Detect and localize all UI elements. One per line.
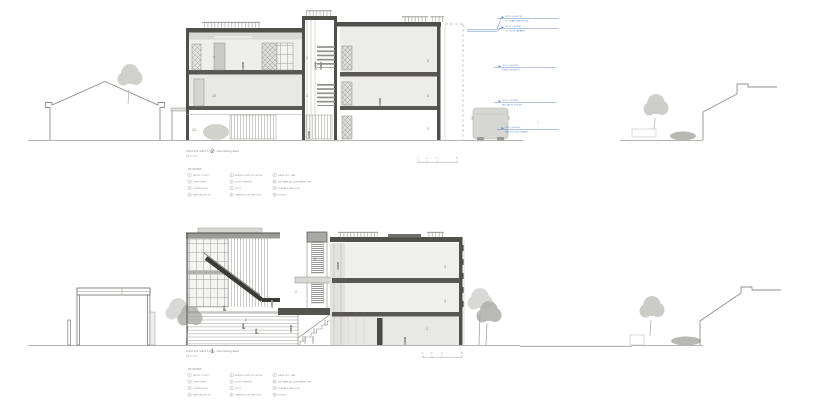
svg-text:+31'-6" (+9.60 M): +31'-6" (+9.60 M) [505, 26, 521, 28]
room-label: 1 [426, 327, 428, 331]
tree [468, 288, 502, 345]
tree [644, 94, 669, 130]
drawing-sheet: 0 2' 4' 8' KEYNOTES 1ENTRY COURT 2OPEN S… [0, 0, 818, 409]
room-label: 10 [212, 94, 216, 98]
room-label: 2 [295, 290, 297, 294]
shrub [671, 337, 701, 346]
title-block: CROSS SECTION 1 view facing East 1/8" = … [186, 348, 239, 358]
svg-text:+21'-0" (+6.40 M): +21'-0" (+6.40 M) [502, 65, 518, 67]
room-label: 2 [314, 257, 316, 261]
property-line-label: P.L. [538, 119, 540, 124]
section-number: 2 [211, 148, 215, 155]
room-label: 12 [192, 128, 196, 132]
room-label: 3 [427, 59, 429, 63]
shrub [670, 132, 696, 141]
elevation-annotation: +35'-0" (+10.67 M) T.O. STAIR PENTHOUSE [497, 16, 559, 22]
title-block: CROSS SECTION 2 view facing East 1/8" = … [186, 148, 239, 158]
room-label: 4 [213, 55, 215, 59]
room-label: 3 [427, 127, 429, 131]
ground-line [28, 346, 703, 347]
neighbor-shed-section [68, 288, 155, 345]
planter-box [630, 335, 644, 345]
planter-box [632, 129, 656, 137]
svg-text:THIRD FLOOR F.F.: THIRD FLOOR F.F. [502, 69, 520, 71]
svg-text:T.O. ROOF PARAPET: T.O. ROOF PARAPET [505, 29, 526, 32]
elevation-annotation: +21'-0" (+6.40 M) THIRD FLOOR F.F. [494, 65, 556, 71]
neighbor-house-left [46, 82, 165, 141]
room-label: 2 [306, 94, 308, 98]
cross-section-1-drawing: 2 2 2 3 3 1 CROSS SECTION 1 view facing … [28, 228, 781, 396]
elevation-annotation: +10'-6" (+3.20 M) SECOND FLOOR F.F. [494, 100, 556, 106]
svg-text:+10'-6" (+3.20 M): +10'-6" (+3.20 M) [502, 100, 518, 102]
room-label: 3 [444, 299, 446, 303]
section-subtitle: view facing East [217, 349, 239, 353]
section-subtitle: view facing East [217, 149, 239, 153]
room-label: 3 [444, 265, 446, 269]
section-number: 1 [211, 348, 215, 355]
section-scale: 1/8" = 1'-0" [186, 156, 197, 158]
elevation-annotation: +31'-6" (+9.60 M) T.O. ROOF PARAPET [497, 26, 559, 32]
svg-text:T.O. STAIR PENTHOUSE: T.O. STAIR PENTHOUSE [505, 19, 529, 22]
building-section: 2 2 2 3 3 1 [186, 228, 464, 345]
svg-text:+35'-0" (+10.67 M): +35'-0" (+10.67 M) [505, 16, 522, 18]
room-label: 2 [245, 318, 247, 322]
sections-svg: 0 2' 4' 8' KEYNOTES 1ENTRY COURT 2OPEN S… [0, 0, 818, 409]
section-scale: 1/8" = 1'-0" [186, 356, 197, 358]
property-line [445, 24, 463, 140]
boulder [203, 124, 229, 140]
room-label: 3 [427, 94, 429, 98]
svg-text:FIRST FLOOR / GRADE: FIRST FLOOR / GRADE [505, 130, 528, 133]
room-label: 2 [306, 56, 308, 60]
neighbor-house-right [700, 287, 781, 345]
tree [118, 64, 143, 104]
svg-text:+0'-0" (+0.00 M): +0'-0" (+0.00 M) [505, 127, 520, 129]
neighbor-house-right [703, 84, 777, 140]
svg-text:SECOND FLOOR F.F.: SECOND FLOOR F.F. [502, 104, 523, 106]
building-section: 4 10 12 2 2 3 3 3 [171, 11, 444, 141]
tree [640, 296, 665, 336]
cross-section-2-drawing: 4 10 12 2 2 3 3 3 P.L. +35'-0" (+ [28, 11, 777, 197]
roof-railing [338, 232, 444, 238]
van [472, 108, 510, 141]
